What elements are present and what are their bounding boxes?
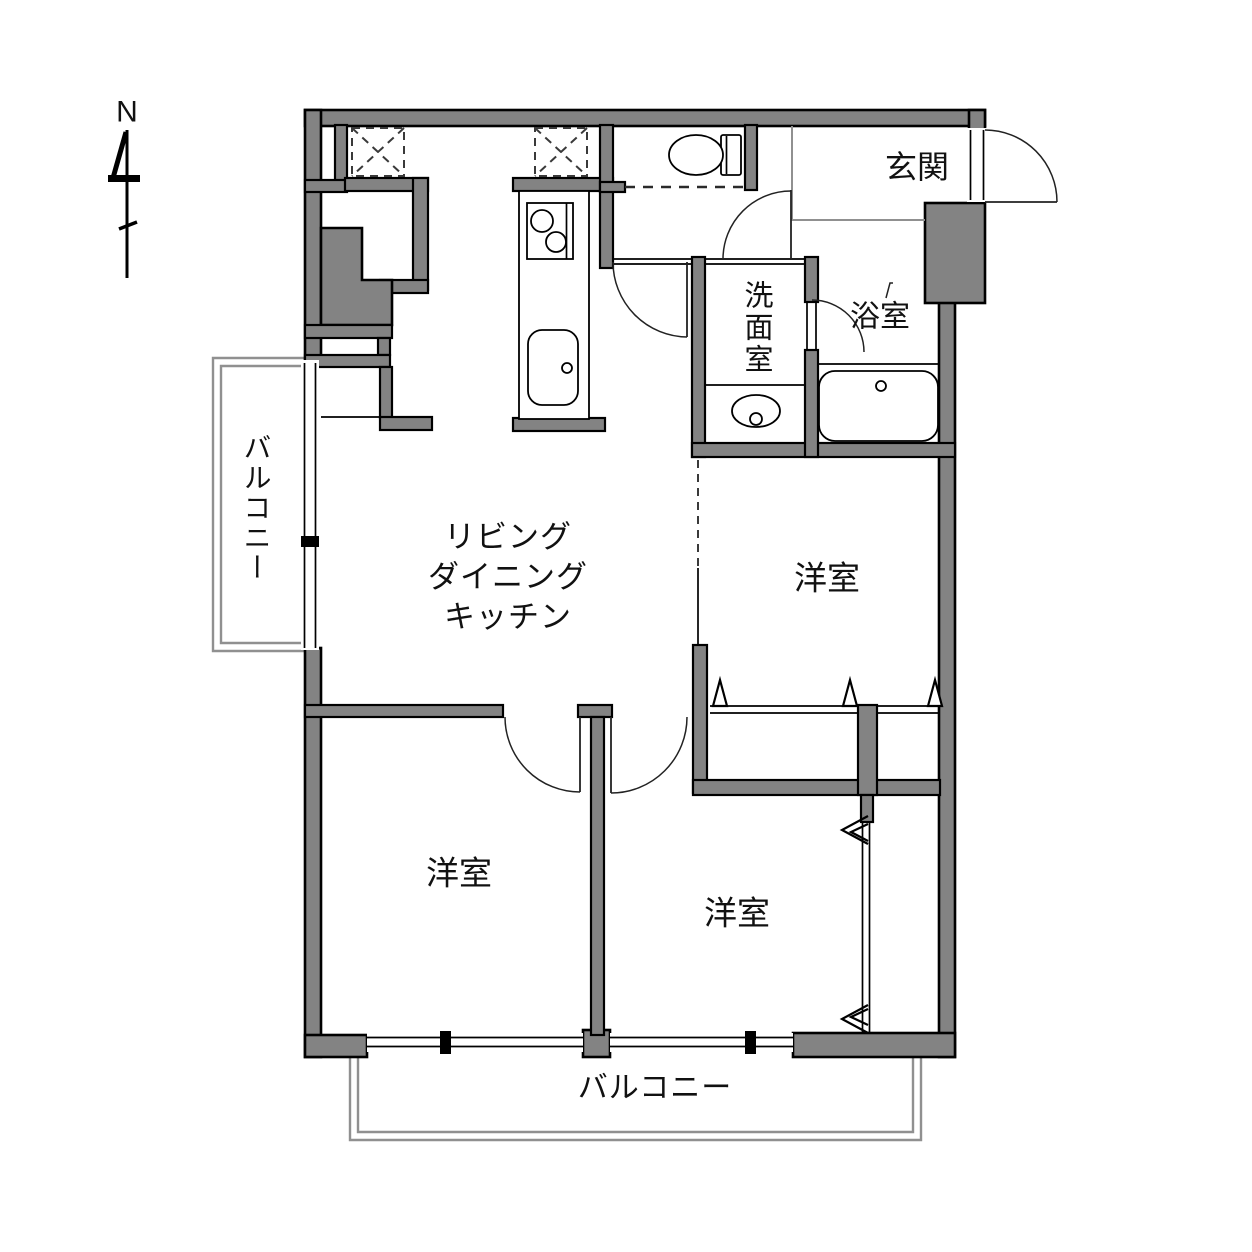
fold-door-mark xyxy=(843,680,857,706)
bathroom-label-leader xyxy=(886,283,893,298)
wall-alcove-right xyxy=(413,178,428,290)
kitchen-counter xyxy=(519,191,589,419)
label-bedroom-se: 洋室 xyxy=(704,895,770,932)
balcony-left-sliding-window xyxy=(301,360,319,650)
washbasin-icon xyxy=(732,395,780,427)
floor-plan-page: N バルコニー バルコニー xyxy=(0,0,1252,1252)
wall-closet-mid-post xyxy=(858,705,877,795)
window-meeting-stile xyxy=(745,1031,756,1054)
compass-arrow-edge xyxy=(113,132,126,178)
wall-bottom-left xyxy=(305,1035,367,1057)
bedroom-se-sliding-window xyxy=(610,1031,793,1054)
wall-bottom-right xyxy=(793,1033,955,1057)
wall-toilet-left xyxy=(600,125,613,268)
ceiling-storage-boxes xyxy=(352,128,587,176)
bedroom-sw-sliding-window xyxy=(367,1031,583,1054)
label-entrance: 玄関 xyxy=(885,149,949,185)
exterior-walls xyxy=(305,110,985,1057)
wall-left-column-horizontal xyxy=(380,417,432,430)
label-bathroom: 浴室 xyxy=(850,301,910,334)
floor-plan-drawing: N バルコニー バルコニー xyxy=(0,0,1252,1252)
balcony-bottom-label: バルコニー xyxy=(578,1072,732,1105)
bedroom-sw-door xyxy=(505,717,580,792)
hall-door xyxy=(613,262,687,337)
wall-closet-bottom xyxy=(693,780,940,795)
windows xyxy=(301,128,987,1054)
wall-toilet-right xyxy=(745,125,757,190)
entrance-door xyxy=(985,130,1057,202)
north-compass: N xyxy=(108,96,140,279)
window-meeting-stile xyxy=(301,536,319,547)
label-ldk-line2: ダイニング xyxy=(428,560,588,595)
balcony-left-label: バルコニー xyxy=(241,433,272,583)
folding-door-zigzag-bottom xyxy=(842,1005,868,1033)
wall-niche-cap xyxy=(305,180,347,192)
wall-niche2-right xyxy=(378,338,390,355)
wall-kitchen-bottom xyxy=(513,418,605,431)
wall-right-main xyxy=(939,298,955,1057)
label-bedroom-ne: 洋室 xyxy=(794,560,860,597)
label-ldk-line1: リビング xyxy=(444,520,572,555)
label-bedroom-sw: 洋室 xyxy=(426,855,492,892)
wall-bath-divider-bottom xyxy=(805,350,818,457)
wall-kitchen-top xyxy=(513,178,613,191)
bathtub-icon xyxy=(819,371,938,441)
compass-arrow-bar xyxy=(108,175,140,182)
kitchen-sink-icon xyxy=(528,330,578,405)
fold-door-mark xyxy=(713,680,727,706)
wall-below-shaft xyxy=(305,325,392,338)
wall-partition-thick xyxy=(693,645,707,793)
window-meeting-stile xyxy=(440,1031,451,1054)
wall-center-post xyxy=(578,705,612,717)
wall-center-divider xyxy=(591,717,604,1035)
balcony-bottom: バルコニー xyxy=(350,1057,921,1140)
ceiling-storage-box-icon xyxy=(352,128,404,176)
compass-north-label: N xyxy=(116,96,138,129)
toilet-icon xyxy=(669,135,741,175)
wall-left-column-vertical xyxy=(380,367,392,418)
pipe-shaft-right xyxy=(925,203,985,303)
wall-toilet-bottom-stub xyxy=(600,182,625,192)
balcony-left: バルコニー xyxy=(213,358,307,651)
wall-sanitary-bottom xyxy=(692,443,955,457)
label-washroom: 洗面室 xyxy=(740,280,773,376)
stove-icon xyxy=(527,203,573,259)
ceiling-storage-box-icon xyxy=(535,128,587,176)
wall-bath-divider-top xyxy=(805,257,818,302)
label-ldk-line3: キッチン xyxy=(444,600,572,635)
closet-fold-marks xyxy=(713,680,942,1033)
wall-top xyxy=(305,110,985,126)
pipe-shaft-left xyxy=(321,228,392,325)
wall-niche-slot xyxy=(335,125,347,182)
wall-washroom-left xyxy=(692,257,705,457)
entrance-door-opening xyxy=(967,128,987,202)
washroom-door xyxy=(723,190,791,259)
bedroom-se-door xyxy=(611,717,687,793)
wall-ldk-bottom xyxy=(305,705,503,717)
